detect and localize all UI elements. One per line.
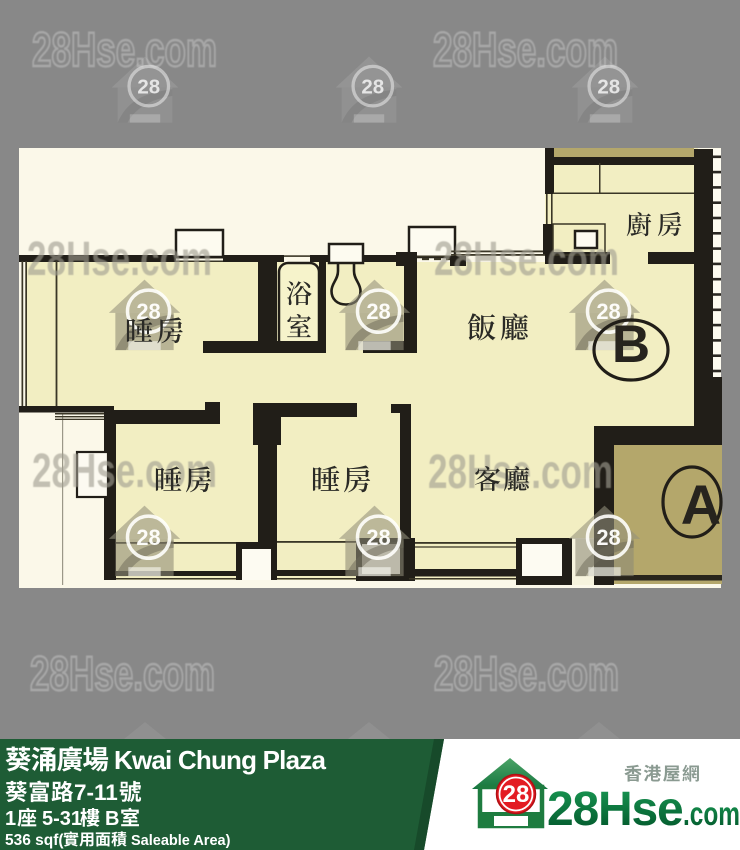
svg-text:B: B — [105, 808, 119, 830]
svg-text:.com: .com — [683, 797, 740, 833]
svg-text:28Hse.com: 28Hse.com — [434, 232, 619, 286]
svg-text:Saleable Area): Saleable Area) — [131, 833, 231, 849]
svg-text:28Hse.com: 28Hse.com — [32, 23, 217, 77]
svg-text:28Hse.com: 28Hse.com — [27, 232, 212, 286]
svg-text:1: 1 — [5, 808, 16, 830]
svg-text:28Hse.com: 28Hse.com — [30, 647, 215, 701]
svg-text:28Hse.com: 28Hse.com — [434, 647, 619, 701]
svg-text:B: B — [612, 315, 650, 374]
svg-text:A: A — [681, 473, 721, 536]
svg-text:28: 28 — [503, 781, 530, 808]
svg-text:28Hse.com: 28Hse.com — [433, 23, 618, 77]
svg-text:7-11: 7-11 — [74, 780, 118, 805]
svg-text:Kwai Chung Plaza: Kwai Chung Plaza — [114, 745, 326, 775]
svg-text:5-31: 5-31 — [42, 808, 82, 830]
svg-text:28Hse: 28Hse — [547, 783, 683, 836]
svg-text:536 sqf(: 536 sqf( — [5, 832, 64, 849]
